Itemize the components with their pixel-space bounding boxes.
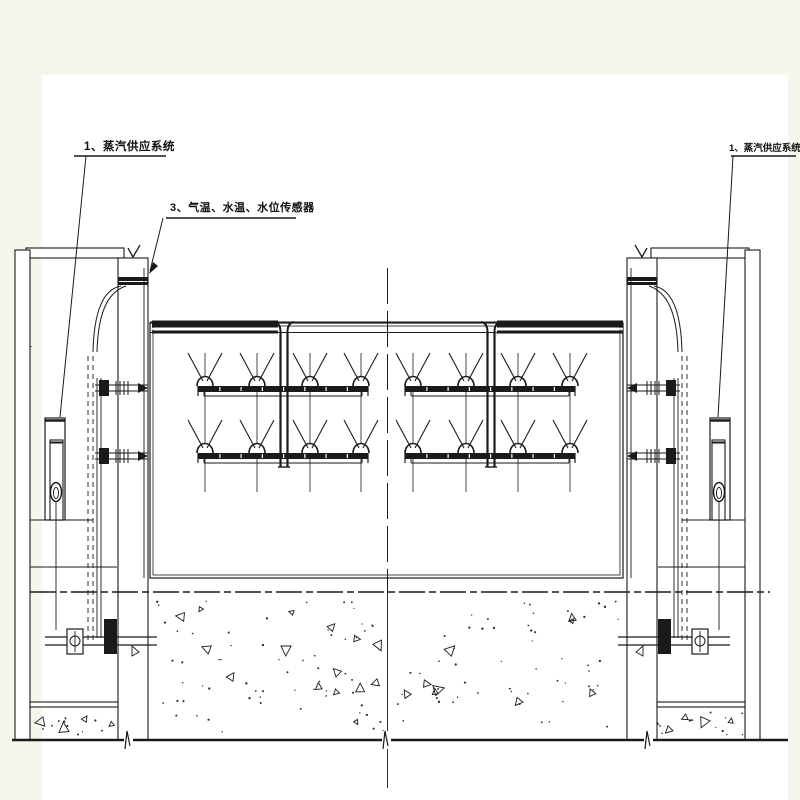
annotation-sensors: 3、气温、水温、水位传感器	[170, 199, 315, 215]
steam-pipework	[150, 321, 623, 493]
foundation-line	[12, 731, 788, 749]
annotation-steam-supply-left: 1、蒸汽供应系统	[84, 138, 175, 154]
section-drawing	[0, 0, 800, 800]
annotation-steam-supply-right: 1、蒸汽供应系统	[729, 140, 800, 154]
left-pier	[15, 245, 157, 740]
right-pier	[618, 245, 760, 740]
annotation-leaders	[60, 156, 796, 417]
gate-panel	[150, 323, 623, 578]
